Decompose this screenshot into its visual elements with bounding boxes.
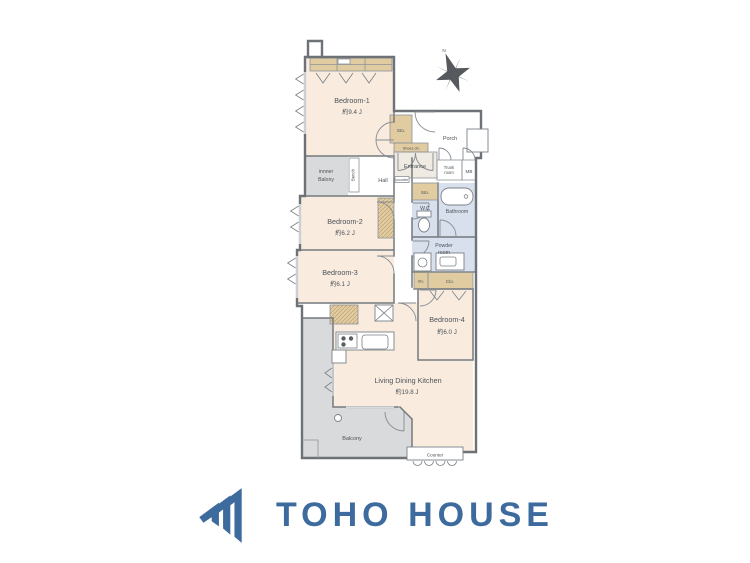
meter-box-label: MB [466,169,473,174]
bench-label: Bench [351,168,356,181]
washer-icon [414,253,431,271]
storage-mid-label: Sto. [421,190,429,195]
compass-n-label: N [442,48,445,53]
inner-balcony-label-1: innner [319,169,334,175]
entrance-label: Entrance [404,164,426,170]
bathroom-label: Bathroom [446,209,469,215]
wc-label: W.C [420,206,430,212]
bedroom1-size: 約9.4 J [342,108,362,116]
bedroom3-closet [330,305,358,324]
bedroom3-label: Bedroom-3 [322,268,358,277]
entrance-counter-label: counter [396,178,409,182]
toho-house-icon [196,485,246,545]
brand-name: TOHO HOUSE [276,496,554,535]
faucet-icon [335,415,342,422]
ldk-label: Living Dining Kitchen [374,376,441,385]
powder-room-label-1: Powder [435,243,453,249]
chimney-outline [308,41,322,57]
porch-label: Porch [443,136,457,142]
bedroom2-label: Bedroom-2 [327,217,363,226]
closet-label: Clo. [446,279,454,284]
bedroom1-label: Bedroom-1 [334,96,370,105]
storage-top-label: Sto. [397,128,405,133]
page: N Bedroom-1 約9.4 J Bedroom-2 約6.2 J Bedr… [0,0,750,563]
inner-balcony-label-2: Balony [318,177,334,183]
shoes-closet-label: Shoes clo [403,147,420,151]
counter-label: Counter [427,453,444,458]
bedroom4-room [418,289,473,360]
bedroom2-size: 約6.2 J [335,229,355,237]
bedroom4-size: 約6.0 J [437,328,457,336]
floor-plan: N Bedroom-1 約9.4 J Bedroom-2 約6.2 J Bedr… [285,34,495,474]
pillar [467,129,488,152]
bedroom4-label: Bedroom-4 [429,315,465,324]
inner-balcony-room [305,156,348,196]
balcony-label: Balcony [342,436,362,442]
hall-label: Hall [378,178,387,184]
bedroom1-room [306,57,394,156]
trunk-room-label-2: room [444,170,454,175]
bedroom3-size: 約6.1 J [330,280,350,288]
compass-icon: N [429,47,477,98]
bedroom2-closet [378,198,394,238]
storage-bottom-label: Sto. [418,280,425,284]
ldk-size: 約19.8 J [395,388,418,396]
brand-logo: TOHO HOUSE [0,482,750,548]
counter-vents [413,461,457,466]
powder-room-label-2: room [438,250,450,256]
bathtub-icon [441,188,473,205]
